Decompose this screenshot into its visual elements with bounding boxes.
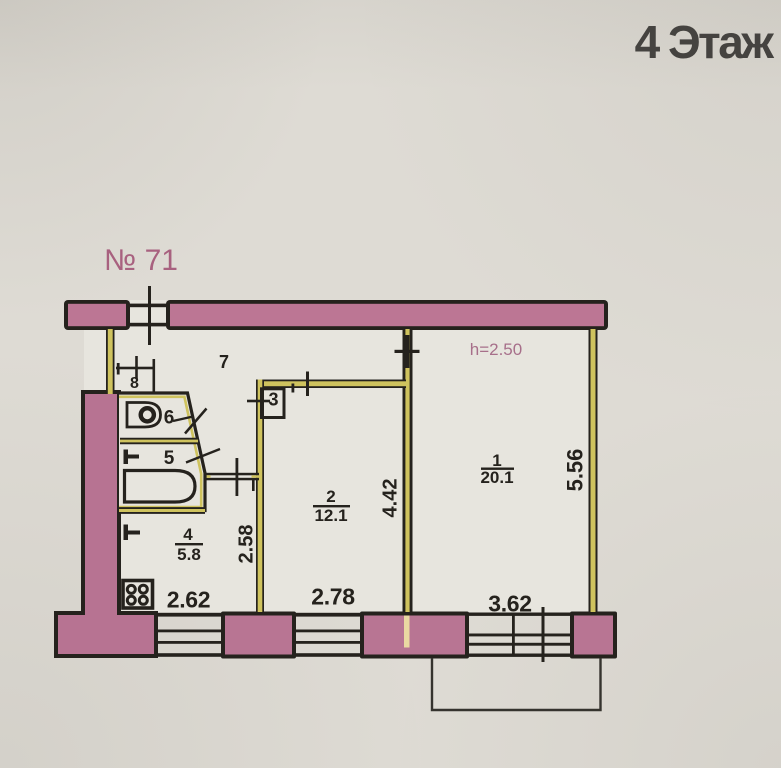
svg-text:3: 3 bbox=[268, 390, 278, 410]
svg-text:12.1: 12.1 bbox=[314, 506, 347, 525]
svg-text:7: 7 bbox=[219, 352, 229, 372]
svg-text:6: 6 bbox=[164, 408, 175, 429]
svg-text:20.1: 20.1 bbox=[480, 468, 513, 487]
svg-text:5.8: 5.8 bbox=[177, 545, 201, 564]
svg-text:2.62: 2.62 bbox=[167, 587, 211, 613]
svg-text:3.62: 3.62 bbox=[488, 591, 532, 617]
svg-text:8: 8 bbox=[130, 375, 139, 392]
svg-text:5: 5 bbox=[164, 448, 175, 469]
svg-text:2.58: 2.58 bbox=[236, 525, 258, 564]
svg-text:4.42: 4.42 bbox=[380, 479, 402, 518]
svg-text:2: 2 bbox=[326, 487, 335, 506]
svg-text:h=2.50: h=2.50 bbox=[470, 340, 522, 359]
svg-text:5.56: 5.56 bbox=[563, 449, 588, 492]
svg-text:4: 4 bbox=[183, 525, 193, 544]
svg-text:4 Этаж: 4 Этаж bbox=[635, 16, 775, 68]
svg-text:№ 71: № 71 bbox=[104, 244, 178, 277]
svg-text:2.78: 2.78 bbox=[311, 584, 355, 610]
